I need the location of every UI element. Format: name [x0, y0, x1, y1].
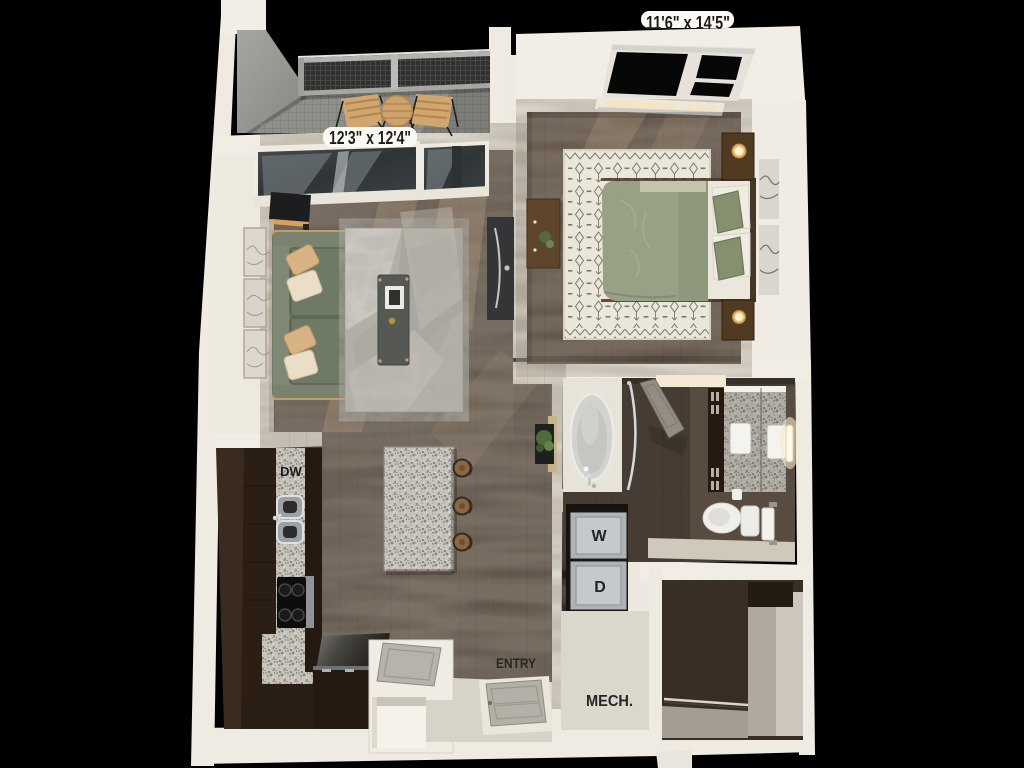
svg-text:ENTRY: ENTRY	[496, 655, 537, 671]
svg-text:D: D	[594, 579, 606, 596]
svg-text:W: W	[591, 528, 607, 545]
svg-text:MECH.: MECH.	[586, 693, 633, 710]
svg-text:DW: DW	[280, 464, 302, 479]
svg-text:12'3" x 12'4": 12'3" x 12'4"	[329, 128, 411, 148]
svg-text:11'6" x 14'5": 11'6" x 14'5"	[646, 13, 730, 33]
